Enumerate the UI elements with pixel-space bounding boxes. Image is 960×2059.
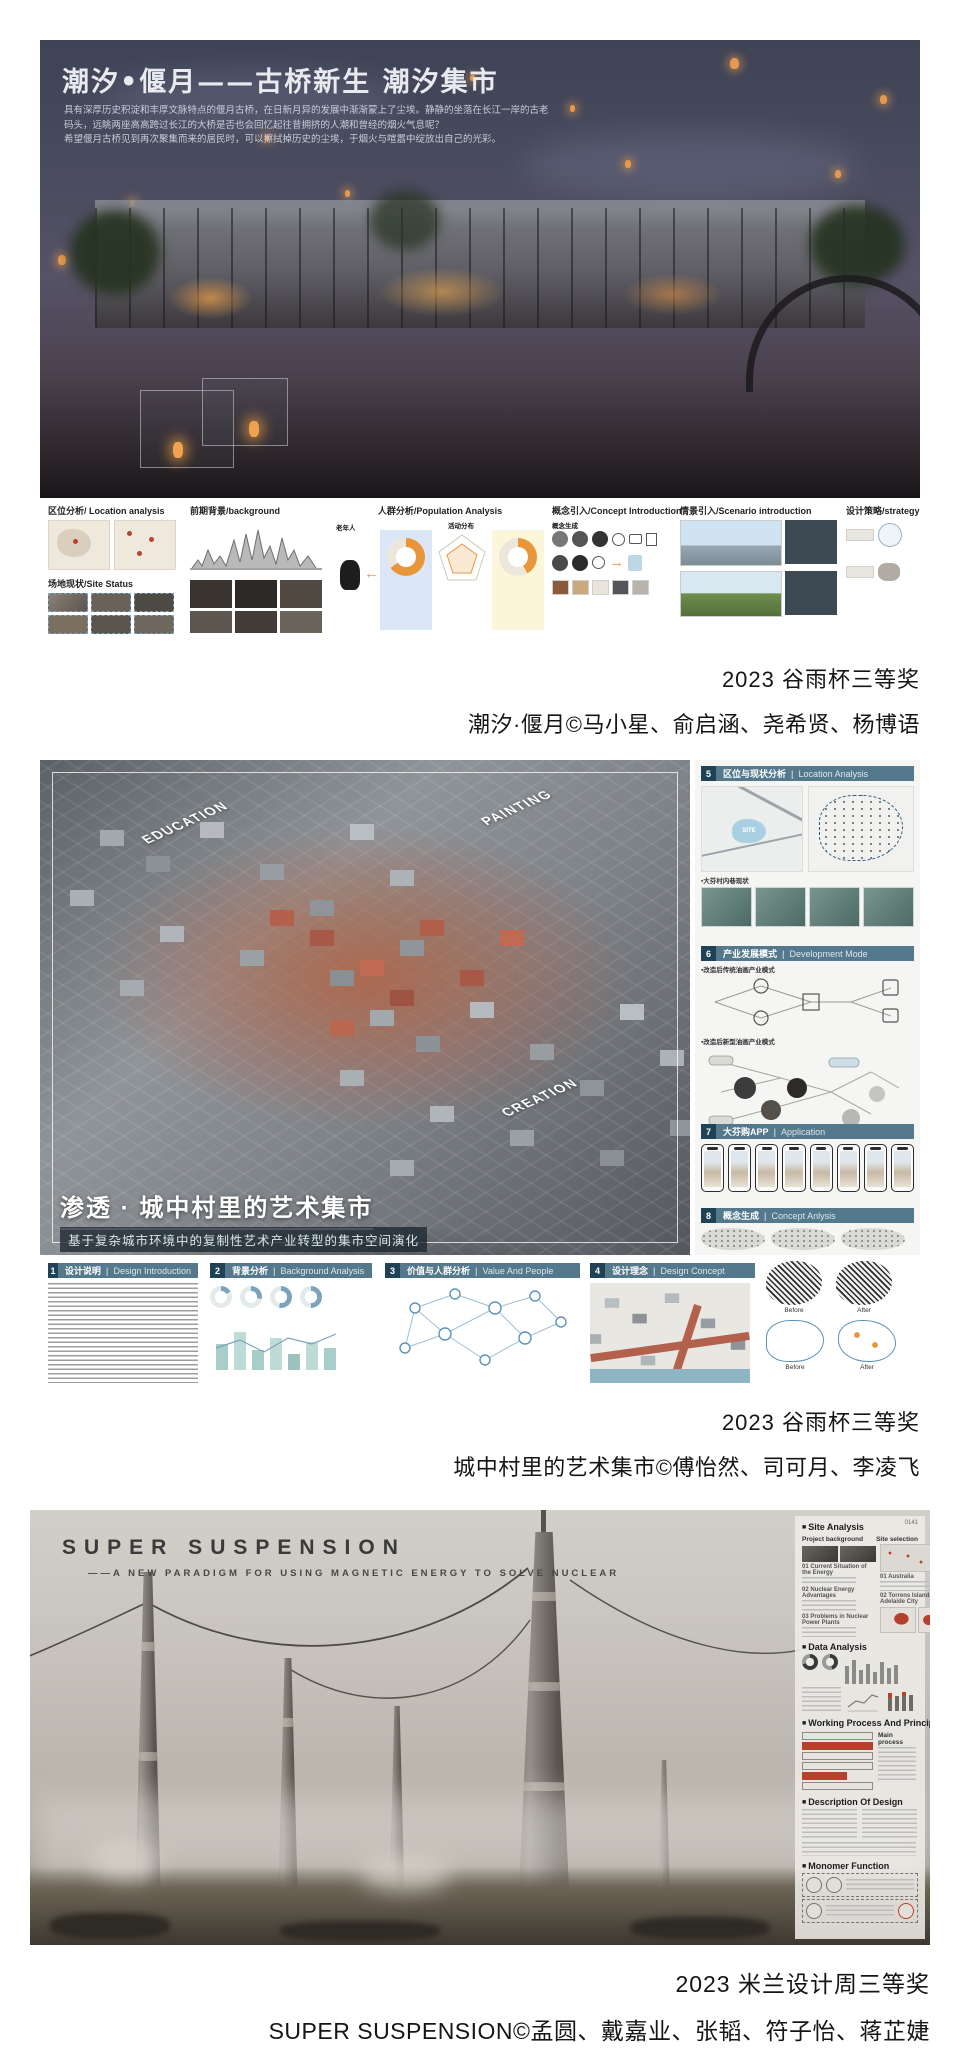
material-swatch: [592, 580, 609, 595]
site-photo: [48, 593, 88, 612]
water-level-chart: [190, 520, 322, 570]
process-flow: [802, 1730, 873, 1792]
concept-icon: [612, 533, 625, 546]
section-title-en: Application: [781, 1127, 825, 1137]
section-concept-generation: 8 概念生成|Concept Anlysis: [701, 1208, 914, 1250]
section-number: 2: [210, 1263, 225, 1278]
note-new-mode: ▪改造后新型油画产业模式: [701, 1036, 914, 1046]
strategy-diagram: [878, 523, 902, 547]
main-process-label: Main process: [878, 1732, 918, 1746]
red-walkway: [590, 1332, 750, 1362]
section-location: 5 区位与现状分析|Location Analysis SITE: [701, 766, 914, 927]
poster-tide-moon-market: 潮汐•偃月——古桥新生 潮汐集市 具有深厚历史积淀和丰厚文脉特点的偃月古桥，在日…: [40, 40, 920, 644]
note-lane-status: ▪大芬村内巷现状: [701, 875, 914, 885]
phone-mockup: [864, 1144, 887, 1192]
firelight-glow: [173, 442, 183, 458]
before-massing: [766, 1261, 822, 1305]
section-title-en: Location Analysis: [799, 769, 869, 779]
stakeholder-network: [385, 1278, 575, 1382]
scenario-illustration: [680, 520, 782, 566]
award-caption-1: 2023 谷雨杯三等奖 潮汐·偃月©马小星、俞启涵、尧希贤、杨博语: [468, 662, 920, 739]
concept-gen-label: 概念生成: [552, 520, 670, 530]
before-after-diagrams: Before After Before After: [766, 1261, 916, 1371]
section-development-mode: 6 产业发展模式|Development Mode ▪改造后传统油画产业模式 ▪…: [701, 946, 914, 1149]
location-australia: 01 Australia: [880, 1574, 930, 1580]
district-label-education: EDUCATION: [138, 799, 232, 847]
location-maps: SITE: [701, 786, 914, 872]
material-swatch: [552, 580, 569, 595]
description-text: [862, 1809, 917, 1839]
scenario-text: [785, 571, 837, 615]
section-title-en: Concept Anlysis: [772, 1211, 836, 1221]
strategy-model: [878, 563, 900, 581]
section-design-introduction: 1 设计说明|Design Introduction: [48, 1263, 198, 1383]
strategy-tag: [846, 566, 874, 578]
poster-art-market: EDUCATION PAINTING CREATION 渗透 · 城中村里的艺术…: [40, 760, 920, 1390]
bottom-analysis-strip: 1 设计说明|Design Introduction 2 背景分析|Backgr…: [40, 1255, 920, 1390]
map-thumbnail: [114, 520, 176, 570]
site-photo: [134, 593, 174, 612]
lantern-icon: [880, 95, 887, 104]
site-item: 03 Problems in Nuclear Power Plants: [802, 1614, 876, 1626]
site-marker: SITE: [732, 819, 766, 843]
factory-silhouette: [630, 1917, 770, 1939]
section-title: 设计策略/strategy: [846, 504, 914, 517]
material-swatch: [632, 580, 649, 595]
section-strategy: 设计策略/strategy: [846, 504, 914, 581]
water-edge: [590, 1369, 750, 1383]
awards-showcase-page: 潮汐•偃月——古桥新生 潮汐集市 具有深厚历史积淀和丰厚文脉特点的偃月古桥，在日…: [0, 0, 960, 2059]
efficiency-line-chart: [846, 1687, 879, 1713]
award-caption-3: 2023 米兰设计周三等奖 SUPER SUSPENSION©孟圆、戴嘉业、张韬…: [269, 1965, 930, 2046]
phone-mockup: [837, 1144, 860, 1192]
section-header: 2 背景分析|Background Analysis: [210, 1263, 372, 1278]
sketch-blob: [701, 1228, 765, 1250]
donut-chart: [240, 1286, 262, 1308]
award-caption-2: 2023 谷雨杯三等奖 城中村里的艺术集市©傅怡然、司可月、李凌飞: [453, 1405, 920, 1482]
concept-circle: [552, 531, 568, 547]
section-title-en: Value And People: [483, 1266, 554, 1276]
before-network: [766, 1320, 824, 1362]
glass-pavilion: [202, 378, 288, 446]
award-title: 2023 谷雨杯三等奖: [468, 662, 920, 694]
site-photo: [134, 615, 174, 634]
site-photo: [91, 593, 131, 612]
award-credit: SUPER SUSPENSION©孟圆、戴嘉业、张韬、符子怡、蒋芷婕: [269, 2012, 930, 2046]
section-site-analysis: Site Analysis: [802, 1522, 918, 1532]
lantern-icon: [570, 105, 575, 112]
section-title-zh: 大芬购APP: [723, 1125, 769, 1138]
after-label: After: [836, 1307, 892, 1314]
concept-city-blocks: [605, 1298, 619, 1308]
after-network: [838, 1320, 896, 1362]
section-header: 1 设计说明|Design Introduction: [48, 1263, 198, 1278]
map-thumbnail: [48, 520, 110, 570]
concept-icon: [629, 534, 642, 544]
donut-chart: [210, 1286, 232, 1308]
section-number: 4: [590, 1263, 605, 1278]
section-title: 前期背景/background: [190, 504, 328, 517]
site-item: 02 Nuclear Energy Advantages: [802, 1587, 876, 1599]
donut-chart: [822, 1654, 838, 1670]
firelight-glow: [249, 421, 259, 437]
monomer-diagram: [802, 1899, 918, 1923]
culture-photo: [235, 611, 277, 633]
traditional-flow-diagram: [701, 976, 911, 1028]
section-title: 场地现状/Site Status: [48, 577, 180, 590]
culture-photo: [280, 611, 322, 633]
after-label: After: [838, 1364, 896, 1371]
lantern-icon: [625, 160, 631, 168]
section-title-zh: 设计理念: [612, 1264, 648, 1277]
poster-intro: 具有深厚历史积淀和丰厚文脉特点的偃月古桥，在日新月异的发展中渐渐蒙上了尘埃。静静…: [64, 104, 556, 148]
industry-bar-chart: [210, 1314, 360, 1372]
energy-donuts: [802, 1654, 838, 1670]
section-title: 区位分析/ Location analysis: [48, 504, 180, 517]
section-number: 7: [701, 1124, 716, 1139]
section-header: 3 价值与人群分析|Value And People: [385, 1263, 580, 1278]
lantern-icon: [345, 190, 350, 197]
donut-chart: [270, 1286, 292, 1308]
analysis-strip: 区位分析/ Location analysis 场地现状/Site Status: [40, 498, 920, 644]
axonometric-city-render: EDUCATION PAINTING CREATION 渗透 · 城中村里的艺术…: [40, 760, 690, 1255]
site-label: SITE: [742, 828, 755, 834]
river-water: [40, 328, 920, 498]
award-title: 2023 米兰设计周三等奖: [269, 1965, 930, 1999]
section-title-en: Design Concept: [661, 1266, 725, 1276]
daytime-panel: [380, 530, 432, 630]
village-map: [808, 786, 914, 872]
tree-silhouette: [370, 190, 440, 250]
tree-silhouette: [810, 205, 905, 285]
lane-photo: [863, 887, 914, 927]
note-traditional-mode: ▪改造后传统油画产业模式: [701, 964, 914, 974]
group-label-elderly: 老年人: [336, 522, 356, 532]
section-number: 8: [701, 1208, 716, 1223]
lantern-icon: [58, 255, 66, 265]
city-blocks: [100, 830, 124, 846]
site-item: 01 Current Situation of the Energy: [802, 1564, 876, 1576]
power-bar-chart: [843, 1654, 905, 1684]
section-number: 6: [701, 946, 716, 961]
factory-silhouette: [280, 1921, 440, 1941]
location-torrens: 02 Torrens Island, Adelaide City: [880, 1593, 930, 1605]
donut-chart: [300, 1286, 322, 1308]
section-design-concept: 4 设计理念|Design Concept: [590, 1263, 755, 1383]
section-title-zh: 价值与人群分析: [407, 1264, 470, 1277]
cloud-shape: [520, 130, 860, 200]
section-description: Description Of Design: [802, 1797, 918, 1807]
concept-icon: [592, 556, 605, 569]
award-title: 2023 谷雨杯三等奖: [453, 1405, 920, 1437]
concept-circle: [592, 531, 608, 547]
scenario-card: [680, 520, 840, 566]
description-text: [48, 1283, 198, 1383]
material-swatches: [552, 580, 670, 595]
hatch-pair: Before After: [766, 1261, 916, 1314]
section-title: 概念引入/Concept Introduction: [552, 504, 670, 517]
arrow-icon: →: [609, 554, 624, 571]
app-screens: [701, 1144, 914, 1192]
monomer-plan: [806, 1903, 822, 1919]
market-blocks: [270, 910, 294, 926]
sketch-blob: [771, 1228, 835, 1250]
strategy-row: [846, 523, 914, 547]
material-swatch: [572, 580, 589, 595]
section-header: 8 概念生成|Concept Anlysis: [701, 1208, 914, 1223]
section-number: 1: [48, 1263, 58, 1278]
award-credit: 城中村里的艺术集市©傅怡然、司可月、李凌飞: [453, 1450, 920, 1482]
background-photos: [802, 1546, 876, 1562]
section-title: 人群分析/Population Analysis: [336, 504, 544, 517]
city-blocks: [370, 1010, 394, 1026]
sketch-blob: [841, 1228, 905, 1250]
concept-row: [552, 531, 670, 547]
monomer-diagram: [802, 1873, 918, 1897]
map-marker: [73, 539, 78, 544]
photo-thumb: [802, 1546, 838, 1562]
location-maps: [48, 520, 180, 570]
lane-photos: [701, 887, 914, 927]
site-photo: [48, 615, 88, 634]
analysis-sidebar: 0141 Site Analysis Project background Si…: [795, 1516, 925, 1939]
section-header: 5 区位与现状分析|Location Analysis: [701, 766, 914, 781]
concept-circle: [572, 555, 588, 571]
activity-label: 活动分布: [448, 520, 474, 530]
night-panel: [492, 530, 544, 630]
section-header: 7 大芬购APP|Application: [701, 1124, 914, 1139]
smoke-plume: [360, 1855, 450, 1891]
section-header: 6 产业发展模式|Development Mode: [701, 946, 914, 961]
concept-illustration: [590, 1283, 750, 1383]
market-pavilion-render: [95, 208, 865, 328]
culture-photo: [190, 580, 232, 608]
concept-circle: [572, 531, 588, 547]
arrow-icon: ←: [364, 565, 379, 582]
stacked-bar-chart: [885, 1687, 918, 1713]
section-number: 3: [385, 1263, 400, 1278]
district-label-painting: PAINTING: [477, 787, 556, 828]
district-label-creation: CREATION: [497, 1076, 581, 1119]
monomer-plan: [826, 1877, 842, 1893]
concept-circle: [552, 555, 568, 571]
scenario-text: [785, 520, 837, 564]
section-title-zh: 背景分析: [232, 1264, 268, 1277]
label-project-background: Project background: [802, 1536, 863, 1543]
section-value-people: 3 价值与人群分析|Value And People: [385, 1263, 580, 1387]
poster-subtitle: ——A NEW PARADIGM FOR USING MAGNETIC ENER…: [88, 1568, 619, 1579]
site-map: SITE: [701, 786, 803, 872]
section-background-analysis: 2 背景分析|Background Analysis: [210, 1263, 372, 1377]
section-population: 人群分析/Population Analysis 老年人 ← 活动分布: [336, 504, 544, 638]
scenario-card: [680, 571, 840, 617]
phone-mockup: [755, 1144, 778, 1192]
culture-photos: [190, 611, 328, 633]
section-number: 5: [701, 766, 716, 781]
pavilion-roofline: [95, 200, 865, 208]
poster-title: 渗透 · 城中村里的艺术集市: [60, 1188, 373, 1230]
intro-paragraph-2: 希望偃月古桥见到再次聚集而来的居民时，可以擦拭掉历史的尘埃，于烟火与喧嚣中绽放出…: [64, 134, 501, 145]
before-label: Before: [766, 1364, 824, 1371]
section-title-zh: 设计说明: [65, 1264, 101, 1277]
poster-super-suspension: SUPER SUSPENSION ——A NEW PARADIGM FOR US…: [30, 1510, 930, 1945]
phone-mockup: [891, 1144, 914, 1192]
population-diagram: 老年人 ← 活动分布: [336, 520, 544, 638]
smoke-plume: [90, 1840, 160, 1880]
phone-mockup: [782, 1144, 805, 1192]
intro-paragraph-1: 具有深厚历史积淀和丰厚文脉特点的偃月古桥，在日新月异的发展中渐渐蒙上了尘埃。静静…: [64, 105, 549, 131]
world-map: [880, 1544, 930, 1572]
award-credit: 潮汐·偃月©马小星、俞启涵、尧希贤、杨博语: [468, 707, 920, 739]
lane-photo: [809, 887, 860, 927]
material-swatch: [612, 580, 629, 595]
section-title-zh: 产业发展模式: [723, 947, 777, 960]
tree-silhouette: [70, 210, 160, 295]
section-concept: 概念引入/Concept Introduction 概念生成 →: [552, 504, 670, 595]
description-text: [802, 1842, 916, 1856]
strategy-row: [846, 563, 914, 581]
section-scenario: 情景引入/Scenario introduction: [680, 504, 840, 622]
section-title-en: Design Introduction: [113, 1266, 191, 1276]
culture-photo: [190, 611, 232, 633]
section-working-process: Working Process And Principle: [802, 1718, 918, 1728]
monomer-plan: [898, 1903, 914, 1919]
section-data-analysis: Data Analysis: [802, 1642, 918, 1652]
map-marker: [137, 551, 142, 556]
factory-silhouette: [50, 1913, 170, 1939]
concept-sketches: [701, 1228, 914, 1250]
culture-photo: [280, 580, 322, 608]
culture-photo: [235, 580, 277, 608]
population-donuts: [210, 1286, 372, 1308]
section-background: 前期背景/background: [190, 504, 328, 633]
people-silhouette: [340, 560, 360, 590]
result-icon: [628, 555, 642, 571]
region-map: [880, 1607, 916, 1633]
radar-chart: [436, 532, 488, 584]
label-site-selection: Site selection: [876, 1536, 918, 1543]
section-header: 4 设计理念|Design Concept: [590, 1263, 755, 1278]
section-title: 情景引入/Scenario introduction: [680, 504, 840, 517]
description-text: [802, 1809, 857, 1839]
section-title-en: Development Mode: [790, 949, 868, 959]
region-map: [918, 1607, 930, 1633]
phone-mockup: [728, 1144, 751, 1192]
site-photo: [91, 615, 131, 634]
concept-icon: [646, 533, 657, 546]
section-title-zh: 概念生成: [723, 1209, 759, 1222]
lantern-icon: [835, 170, 841, 178]
lane-photo: [755, 887, 806, 927]
donut-chart: [802, 1654, 818, 1670]
concept-row: →: [552, 554, 670, 571]
phone-mockup: [701, 1144, 724, 1192]
analysis-sidebar: 5 区位与现状分析|Location Analysis SITE: [695, 760, 920, 1255]
lane-photo: [701, 887, 752, 927]
map-marker: [149, 537, 154, 542]
photo-thumb: [840, 1546, 876, 1562]
lantern-icon: [730, 58, 739, 69]
section-monomer-function: Monomer Function: [802, 1861, 918, 1871]
site-photos: [48, 593, 174, 634]
population-donut-chart: [499, 538, 537, 576]
scenario-illustration: [680, 571, 782, 617]
section-title-zh: 区位与现状分析: [723, 767, 786, 780]
map-marker: [127, 531, 132, 536]
section-title-en: Background Analysis: [281, 1266, 365, 1276]
after-massing: [836, 1261, 892, 1305]
section-app: 7 大芬购APP|Application: [701, 1124, 914, 1192]
before-label: Before: [766, 1307, 822, 1314]
entry-number: 0141: [905, 1520, 918, 1526]
poster-title: 潮汐•偃月——古桥新生 潮汐集市: [62, 60, 499, 99]
comparison-table: [802, 1687, 841, 1713]
monomer-plan: [806, 1877, 822, 1893]
population-donut-chart: [387, 538, 425, 576]
outline-pair: Before After: [766, 1320, 916, 1371]
phone-mockup: [810, 1144, 833, 1192]
poster-title: SUPER SUSPENSION: [62, 1536, 406, 1560]
poster-subtitle: 基于复杂城市环境中的复制性艺术产业转型的集市空间演化: [60, 1227, 427, 1252]
village-boundary: [819, 795, 903, 861]
strategy-tag: [846, 529, 874, 541]
culture-photos: [190, 580, 328, 608]
section-location-analysis: 区位分析/ Location analysis 场地现状/Site Status: [48, 504, 180, 634]
photo-node: [734, 1077, 756, 1099]
